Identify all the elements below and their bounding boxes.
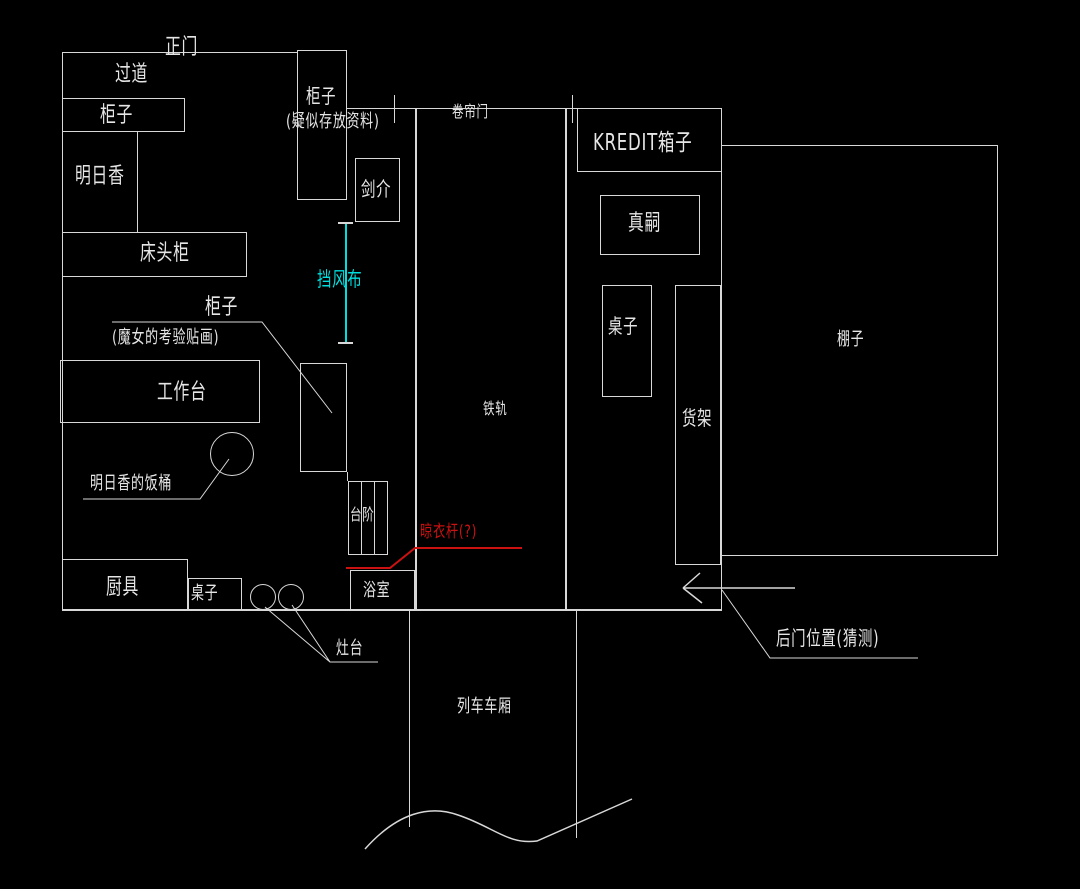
label-table-left: 桌子 bbox=[191, 585, 218, 603]
asuka-area-divider bbox=[137, 132, 138, 232]
label-table-right: 桌子 bbox=[608, 316, 638, 336]
label-clothes-rod: 晾衣杆(?) bbox=[420, 524, 477, 541]
label-shed: 棚子 bbox=[837, 331, 864, 349]
label-train-carriage: 列车车厢 bbox=[457, 698, 512, 716]
label-main-door: 正门 bbox=[165, 37, 198, 59]
label-bathroom: 浴室 bbox=[363, 582, 390, 600]
shutter-tick-left bbox=[394, 95, 395, 123]
rail-corridor-wall-right bbox=[565, 108, 567, 610]
train-carriage-right-edge bbox=[576, 611, 577, 838]
windbreak-tick-top bbox=[338, 222, 353, 224]
label-asuka-rice-bucket: 明日香的饭桶 bbox=[90, 475, 172, 493]
wall-stub-cabinet-steps bbox=[347, 472, 348, 481]
train-carriage-left-edge bbox=[409, 611, 410, 827]
label-kredit-box: KREDIT箱子 bbox=[593, 132, 692, 155]
cabinet-witch-box bbox=[300, 363, 347, 472]
label-cabinet-witch-1: 柜子 bbox=[205, 297, 238, 319]
wall-left bbox=[62, 52, 63, 610]
rail-corridor-wall-left bbox=[415, 108, 417, 610]
windbreak-tick-bottom bbox=[338, 342, 353, 344]
back-door-arrow bbox=[683, 573, 795, 603]
label-shinji: 真嗣 bbox=[628, 213, 661, 235]
label-workbench: 工作台 bbox=[157, 382, 207, 404]
label-stove: 灶台 bbox=[336, 640, 363, 658]
label-corridor: 过道 bbox=[115, 64, 148, 86]
label-back-door: 后门位置(猜测) bbox=[776, 628, 879, 648]
table-right-box bbox=[602, 285, 652, 397]
label-bedside-cabinet: 床头柜 bbox=[140, 243, 190, 265]
label-asuka: 明日香 bbox=[75, 166, 125, 188]
label-goods-shelf: 货架 bbox=[682, 408, 712, 428]
stove-burner-2 bbox=[278, 584, 304, 610]
label-cabinet-top: 柜子 bbox=[100, 105, 133, 127]
label-cabinet-docs-2: (疑似存放资料) bbox=[286, 113, 380, 131]
stove-burner-1 bbox=[250, 584, 276, 610]
label-windbreak-cloth: 挡风布 bbox=[317, 269, 362, 289]
label-rail-track: 铁轨 bbox=[483, 401, 507, 417]
label-steps: 台阶 bbox=[350, 507, 374, 523]
train-track-break-curve bbox=[365, 799, 632, 849]
floor-plan-canvas: 正门 过道 柜子 明日香 床头柜 柜子 (疑似存放资料) 剑介 挡风布 柜子 (… bbox=[0, 0, 1080, 889]
label-kitchenware: 厨具 bbox=[106, 577, 139, 599]
label-cabinet-docs-1: 柜子 bbox=[306, 86, 336, 106]
label-cabinet-witch-2: (魔女的考验贴画) bbox=[112, 329, 219, 347]
label-rolling-shutter-door: 卷帘门 bbox=[452, 104, 489, 120]
label-kensuke: 剑介 bbox=[361, 179, 391, 199]
rice-bucket-circle bbox=[210, 432, 254, 476]
shed-box bbox=[721, 145, 998, 556]
shutter-tick-right bbox=[572, 95, 573, 123]
